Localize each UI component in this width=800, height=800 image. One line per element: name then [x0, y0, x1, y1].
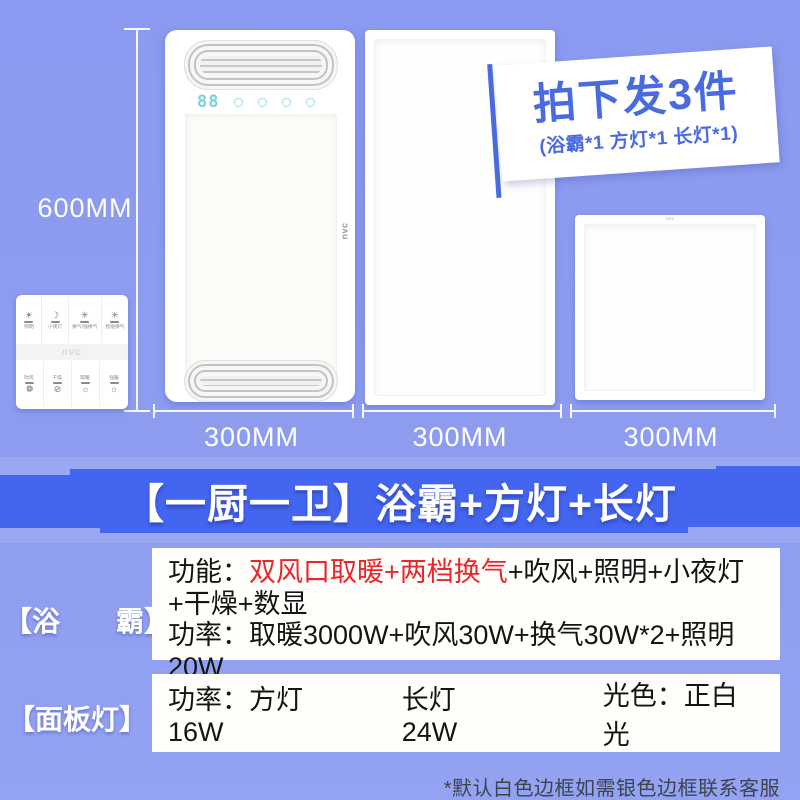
heat-icon: ☼ [81, 385, 89, 394]
product-title: 【一厨一卫】浴霸+方灯+长灯 [0, 469, 800, 531]
heater-indicator-icon [234, 98, 243, 107]
product-promo-image: 600MM ☀ 照明 ☽ 小夜灯 ✳ 换气/强换气 ✳ 智能换气 [0, 0, 800, 800]
heater-light-panel [185, 114, 337, 388]
square-panel-light-surface [584, 224, 756, 391]
spec-label-panel-lights: 【面板灯】 [4, 698, 150, 738]
heater-bottom-grille [184, 360, 338, 402]
square-light-brand-logo: nvc [666, 217, 674, 222]
spec-function-rest: +吹风+照明+小夜灯 [508, 557, 744, 587]
heater-display-digits: 88 [197, 92, 219, 112]
vent-icon: ✳ [81, 311, 89, 320]
remote-button-dry: 干燥 ⊘ [44, 361, 72, 407]
heater-top-grille [184, 40, 338, 90]
remote-brand-logo: nvc [16, 344, 128, 360]
bathroom-heater-unit: 88 nvc [165, 30, 355, 402]
night-light-icon: ☽ [51, 311, 59, 320]
remote-button-night-light: ☽ 小夜灯 [42, 297, 68, 343]
button-bar [110, 321, 119, 323]
dry-icon: ⊘ [54, 385, 62, 394]
spec-box-heater: 功能：双风口取暖+两档换气+吹风+照明+小夜灯 +干燥+数显 功率：取暖3000… [152, 548, 780, 660]
panel-power-long: 长灯24W [402, 678, 511, 748]
remote-bottom-row: 吹风 ❁ 干燥 ⊘ 取暖 ☼ 强暖 ☼ [16, 361, 128, 407]
smart-vent-icon: ✳ [111, 311, 119, 320]
width-dimension-line [362, 404, 562, 418]
spec-function-key: 功能： [168, 557, 249, 587]
heater-indicator-icon [282, 98, 291, 107]
panel-power-square: 功率：方灯16W [168, 678, 358, 748]
title-ribbon: 【一厨一卫】浴霸+方灯+长灯 [0, 447, 800, 551]
spec-function-line2: +干燥+数显 [168, 589, 308, 619]
remote-button-blow: 吹风 ❁ [16, 361, 44, 407]
remote-button-smart-vent: ✳ 智能换气 [102, 297, 128, 343]
heater-indicator-icon [258, 98, 267, 107]
remote-button-vent: ✳ 换气/强换气 [69, 297, 102, 343]
remote-button-heat: 取暖 ☼ [72, 361, 100, 407]
quantity-badge: 拍下发3件 (浴霸*1 方灯*1 长灯*1) [494, 46, 779, 181]
remote-top-row: ☀ 照明 ☽ 小夜灯 ✳ 换气/强换气 ✳ 智能换气 [16, 297, 128, 343]
remote-control: ☀ 照明 ☽ 小夜灯 ✳ 换气/强换气 ✳ 智能换气 nvc [16, 295, 128, 409]
spec-power-line: 功率：取暖3000W+吹风30W+换气30W*2+照明20W [168, 620, 734, 682]
spec-box-panel-lights: 功率：方灯16W 长灯24W 光色：正白光 [152, 674, 780, 752]
height-dimension-label: 600MM [30, 193, 140, 224]
spec-function-highlight: 双风口取暖+两档换气 [249, 557, 508, 587]
panel-light-color: 光色：正白光 [603, 674, 764, 752]
footer-note: *默认白色边框如需银色边框联系客服 [444, 772, 780, 800]
heater-brand-logo: nvc [339, 222, 349, 239]
width-dimension-line [153, 404, 354, 418]
heater-display: 88 [197, 92, 315, 112]
spec-label-heater: 【浴 霸】 [4, 600, 150, 640]
button-bar [80, 321, 89, 323]
light-icon: ☀ [25, 311, 33, 320]
button-bar [24, 321, 33, 323]
blow-icon: ❁ [26, 385, 34, 394]
width-dimension-line [570, 404, 776, 418]
heater-indicator-icon [306, 98, 315, 107]
button-bar [51, 321, 60, 323]
strong-heat-icon: ☼ [110, 385, 118, 394]
remote-button-strong-heat: 强暖 ☼ [100, 361, 128, 407]
square-panel-light: nvc [575, 215, 765, 400]
remote-button-light: ☀ 照明 [16, 297, 42, 343]
